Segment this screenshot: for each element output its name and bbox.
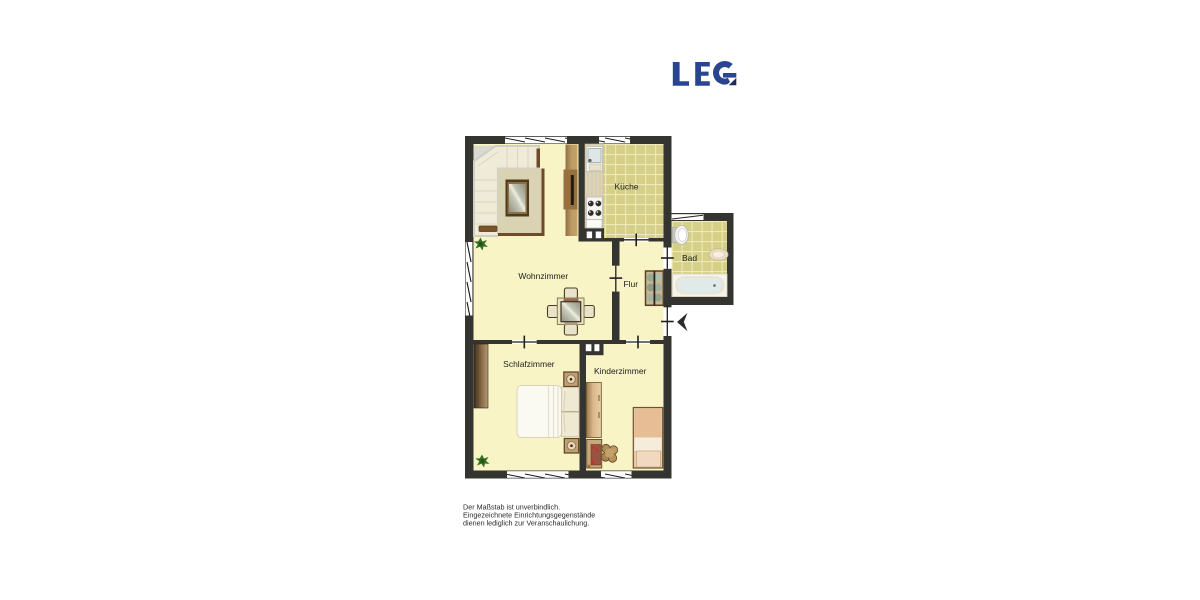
svg-text:Küche: Küche xyxy=(614,181,638,191)
svg-text:Bad: Bad xyxy=(682,253,697,263)
svg-text:Schlafzimmer: Schlafzimmer xyxy=(503,359,555,369)
svg-text:dienen lediglich zur Veranscha: dienen lediglich zur Veranschaulichung. xyxy=(463,518,589,527)
svg-text:Flur: Flur xyxy=(623,279,638,289)
svg-text:Wohnzimmer: Wohnzimmer xyxy=(518,271,568,281)
svg-text:Kinderzimmer: Kinderzimmer xyxy=(594,366,647,376)
